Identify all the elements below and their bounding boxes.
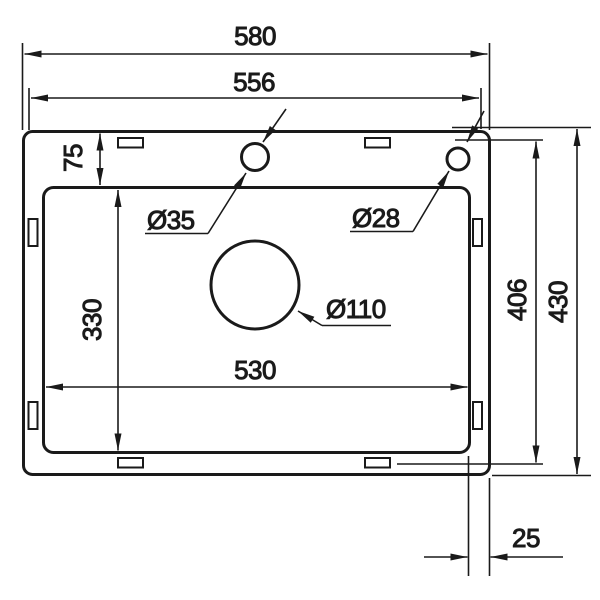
mounting-clip-left-lower [29,402,38,429]
dim-upper-width-label: 556 [233,67,275,97]
callout-drain-hole-label: Ø110 [326,294,386,324]
drawing-root: 580 556 75 330 [23,21,592,576]
callout-accessory-hole-label: Ø28 [352,203,400,233]
mounting-clip-top-right [365,138,390,148]
sink-dimension-drawing: 580 556 75 330 [0,0,600,600]
mounting-clip-right-upper [473,219,482,246]
dim-inner-height-label: 406 [502,279,532,321]
faucet-hole [242,144,269,171]
dim-bowl-width-label: 530 [234,355,276,385]
callout-faucet-hole-label: Ø35 [147,205,195,235]
dim-overall-width-label: 580 [234,21,276,51]
mounting-clip-left-upper [29,219,38,246]
mounting-clip-top-left [118,138,143,148]
mounting-clip-right-lower [473,402,482,429]
mounting-clip-bottom-left [118,458,143,468]
dim-top-rim-label: 75 [58,144,88,172]
dim-bowl-height-label: 330 [77,299,107,341]
drain-hole [211,241,299,329]
accessory-hole [447,148,469,170]
mounting-clip-bottom-right [365,458,390,468]
dim-side-rim-label: 25 [512,523,540,553]
dim-upper-width: 556 [29,67,481,130]
dim-overall-height-label: 430 [543,281,573,323]
